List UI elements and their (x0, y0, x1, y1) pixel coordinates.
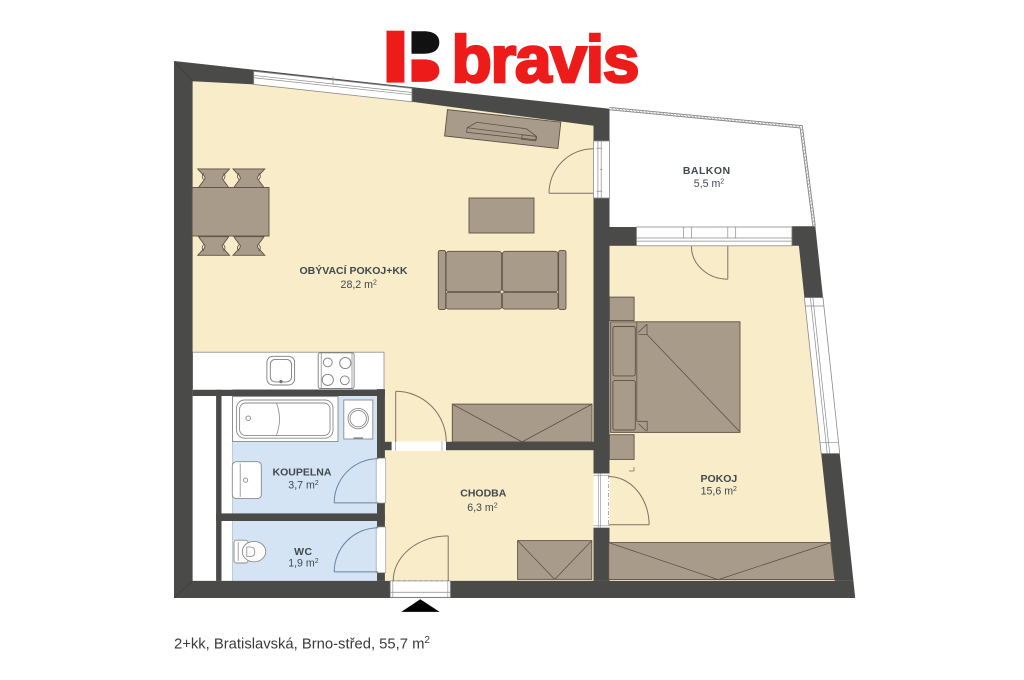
svg-text:1,9 m2: 1,9 m2 (288, 558, 319, 570)
svg-text:6,3 m2: 6,3 m2 (467, 502, 498, 514)
svg-text:28,2 m2: 28,2 m2 (341, 279, 377, 291)
svg-text:15,6 m2: 15,6 m2 (701, 486, 737, 498)
svg-text:bravis: bravis (452, 22, 639, 96)
svg-text:2+kk, Bratislavská, Brno-střed: 2+kk, Bratislavská, Brno-střed, 55,7 m2 (174, 635, 430, 653)
svg-text:CHODBA: CHODBA (460, 488, 506, 500)
svg-text:BALKON: BALKON (683, 165, 731, 177)
svg-text:3,7 m2: 3,7 m2 (288, 480, 319, 492)
svg-text:POKOJ: POKOJ (701, 473, 738, 485)
svg-text:KOUPELNA: KOUPELNA (273, 467, 332, 479)
svg-text:OBÝVACÍ POKOJ+KK: OBÝVACÍ POKOJ+KK (299, 264, 407, 277)
svg-text:WC: WC (294, 546, 313, 558)
svg-text:5,5 m2: 5,5 m2 (694, 178, 725, 190)
